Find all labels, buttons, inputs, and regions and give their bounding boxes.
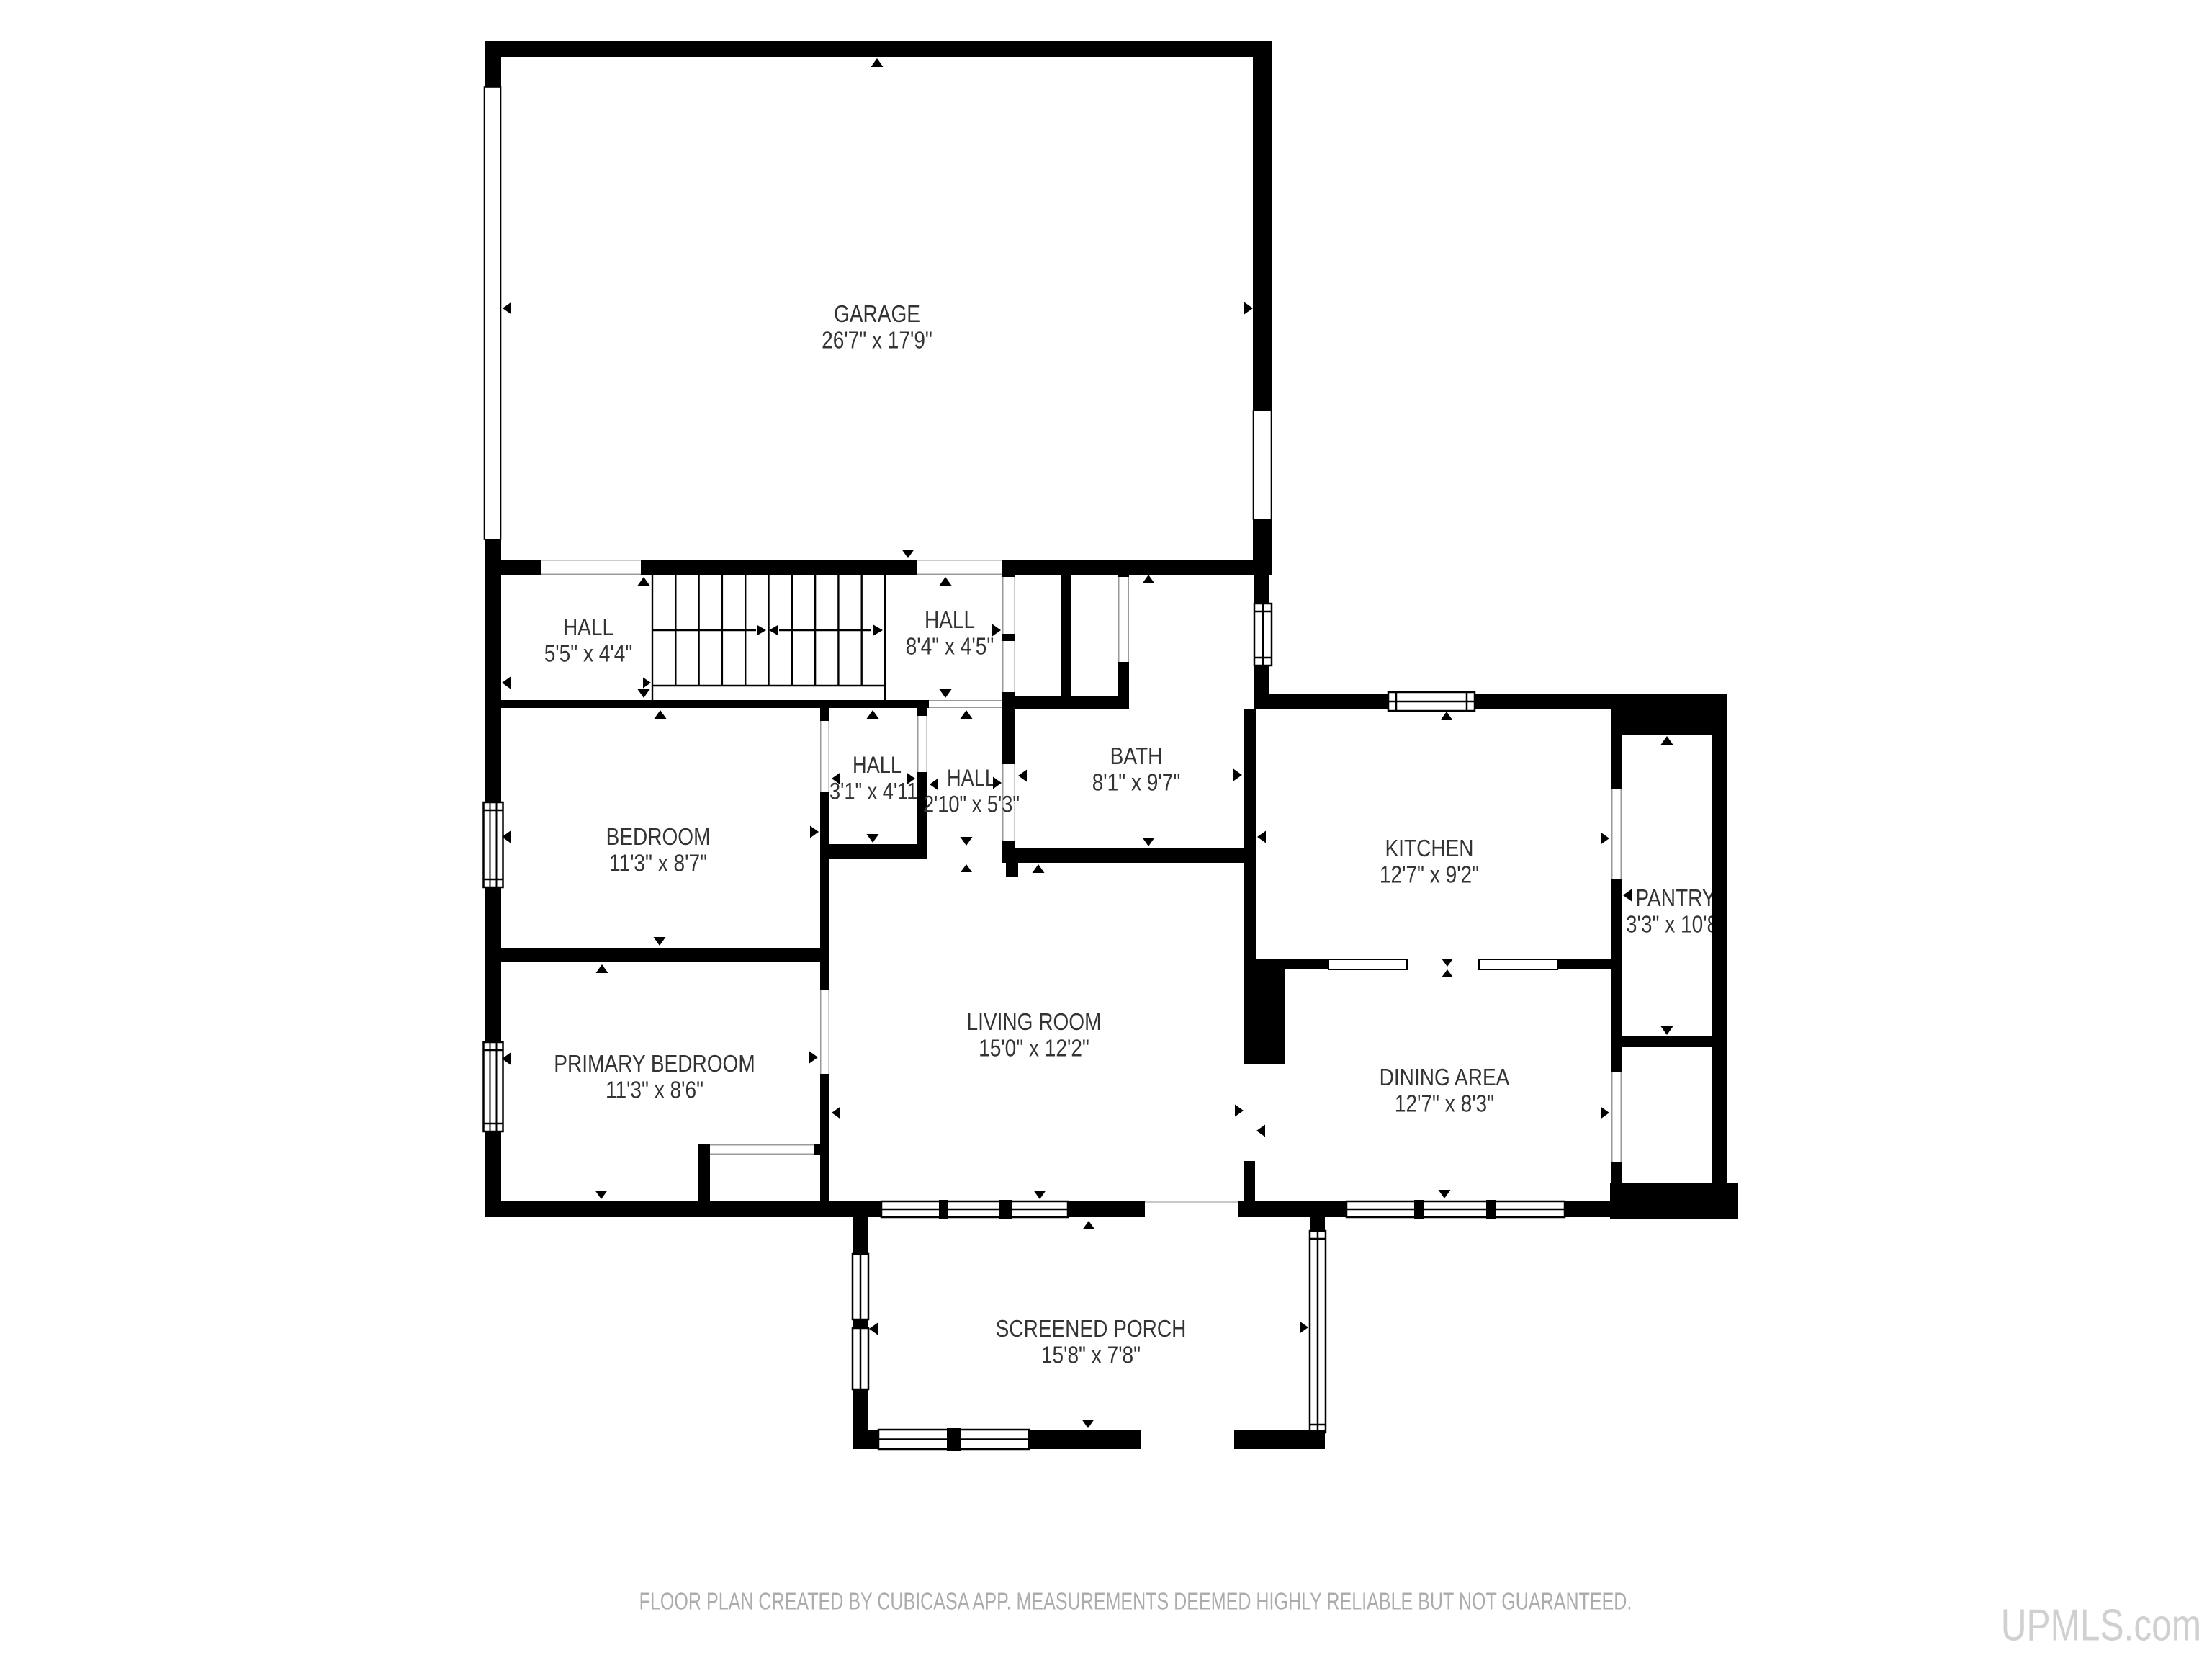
svg-text:12'7" x 8'3": 12'7" x 8'3"	[1395, 1090, 1494, 1117]
svg-text:BATH: BATH	[1110, 743, 1163, 770]
svg-text:15'8" x 7'8": 15'8" x 7'8"	[1041, 1342, 1141, 1368]
svg-text:BEDROOM: BEDROOM	[606, 824, 711, 851]
svg-text:3'3" x 10'8": 3'3" x 10'8"	[1626, 911, 1725, 938]
svg-text:8'4" x 4'5": 8'4" x 4'5"	[906, 633, 994, 660]
svg-text:11'3" x 8'6": 11'3" x 8'6"	[606, 1077, 703, 1103]
svg-text:HALL: HALL	[853, 753, 902, 779]
svg-text:GARAGE: GARAGE	[834, 301, 920, 328]
svg-text:DINING AREA: DINING AREA	[1380, 1064, 1510, 1091]
svg-text:FLOOR PLAN CREATED BY CUBICASA: FLOOR PLAN CREATED BY CUBICASA APP. MEAS…	[639, 1588, 1632, 1615]
svg-text:8'1" x 9'7": 8'1" x 9'7"	[1092, 769, 1181, 796]
svg-text:26'7" x 17'9": 26'7" x 17'9"	[822, 327, 932, 354]
svg-text:12'7" x 9'2": 12'7" x 9'2"	[1380, 861, 1479, 888]
svg-text:3'1" x 4'11": 3'1" x 4'11"	[829, 779, 925, 805]
svg-text:PRIMARY BEDROOM: PRIMARY BEDROOM	[554, 1051, 755, 1077]
svg-text:11'3" x 8'7": 11'3" x 8'7"	[609, 850, 707, 877]
svg-text:LIVING ROOM: LIVING ROOM	[967, 1009, 1102, 1036]
svg-text:15'0" x 12'2": 15'0" x 12'2"	[979, 1035, 1089, 1062]
svg-text:HALL: HALL	[947, 766, 996, 792]
svg-text:SCREENED PORCH: SCREENED PORCH	[996, 1316, 1187, 1342]
svg-text:PANTRY: PANTRY	[1635, 885, 1715, 912]
svg-text:UPMLS.com: UPMLS.com	[2001, 1600, 2201, 1650]
svg-text:KITCHEN: KITCHEN	[1385, 835, 1473, 862]
svg-text:2'10" x 5'3": 2'10" x 5'3"	[923, 792, 1020, 818]
svg-text:HALL: HALL	[563, 614, 613, 641]
svg-text:HALL: HALL	[925, 607, 975, 634]
svg-text:5'5" x 4'4": 5'5" x 4'4"	[544, 640, 633, 667]
